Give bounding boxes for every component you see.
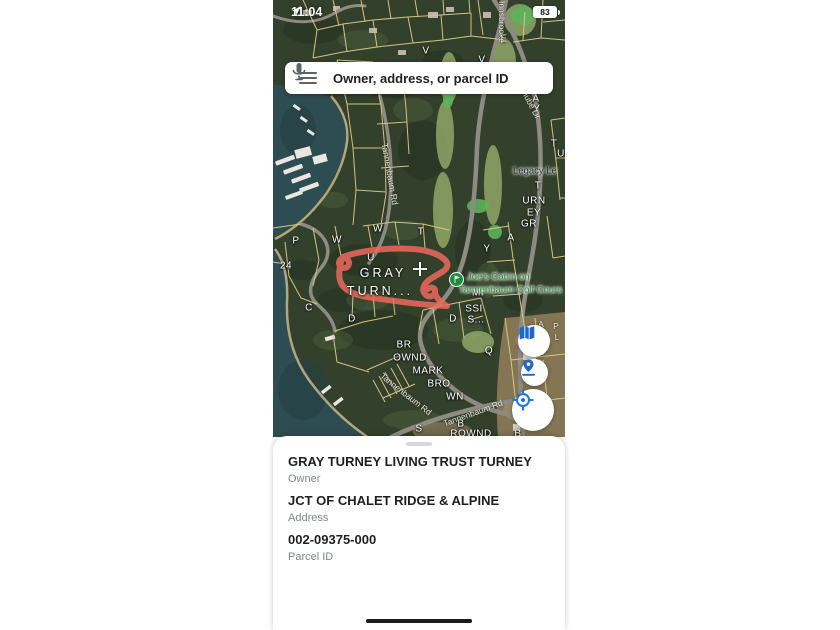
parcel-field: 002-09375-000Parcel ID xyxy=(288,532,551,564)
map-layers-button[interactable] xyxy=(518,325,550,357)
drop-pin-icon xyxy=(521,359,536,376)
field-value: JCT OF CHALET RIDGE & ALPINE xyxy=(288,493,551,509)
parcel-field: JCT OF CHALET RIDGE & ALPINEAddress xyxy=(288,493,551,525)
field-label: Address xyxy=(288,512,551,525)
screenshot-canvas: VVEWPWU24CDTYARAYTUTURNEYGRMISSIS...DQBR… xyxy=(0,0,840,630)
field-label: Parcel ID xyxy=(288,551,551,564)
battery-icon: 83 xyxy=(533,6,557,18)
search-input[interactable] xyxy=(331,70,553,87)
field-value: 002-09375-000 xyxy=(288,532,551,548)
clock: 11:04 xyxy=(291,5,322,19)
sheet-drag-handle[interactable] xyxy=(406,442,432,446)
map-layers-icon xyxy=(518,325,536,341)
phone-screen: VVEWPWU24CDTYARAYTUTURNEYGRMISSIS...DQBR… xyxy=(273,0,565,630)
battery-percent: 83 xyxy=(540,7,549,17)
home-indicator[interactable] xyxy=(366,619,472,623)
drop-pin-button[interactable] xyxy=(521,359,548,386)
microphone-icon[interactable] xyxy=(291,62,307,82)
status-bar: 11:04 xyxy=(273,0,565,24)
parcel-info-sheet[interactable]: GRAY TURNEY LIVING TRUST TURNEYOwnerJCT … xyxy=(273,436,565,630)
parcel-field: GRAY TURNEY LIVING TRUST TURNEYOwner xyxy=(288,454,551,486)
map-view[interactable]: VVEWPWU24CDTYARAYTUTURNEYGRMISSIS...DQBR… xyxy=(273,0,565,437)
parcel-fields: GRAY TURNEY LIVING TRUST TURNEYOwnerJCT … xyxy=(273,436,565,564)
field-label: Owner xyxy=(288,473,551,486)
location-services-icon xyxy=(291,5,302,16)
search-bar[interactable] xyxy=(285,62,553,94)
field-value: GRAY TURNEY LIVING TRUST TURNEY xyxy=(288,454,551,470)
my-location-button[interactable] xyxy=(512,389,554,431)
my-location-icon xyxy=(512,389,534,411)
